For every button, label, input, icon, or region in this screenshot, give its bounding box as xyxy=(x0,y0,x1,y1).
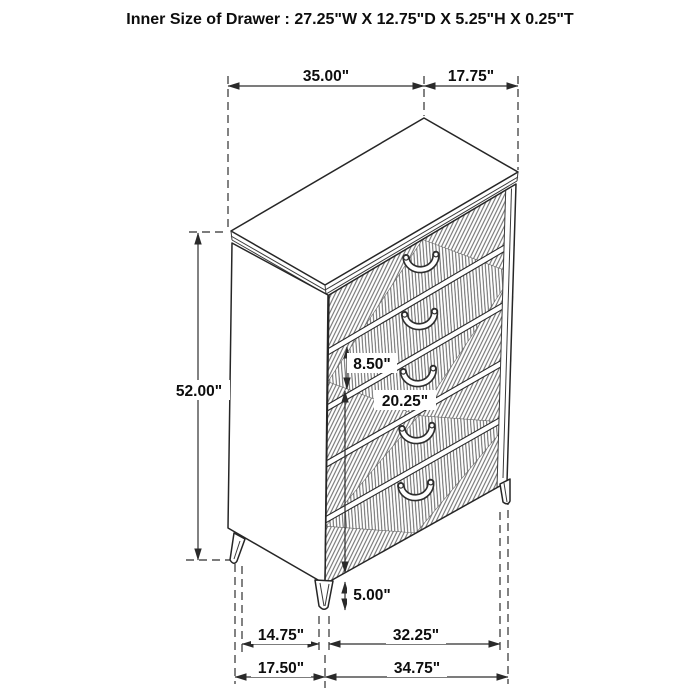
dim-base-inner-depth: 14.75" xyxy=(251,625,311,644)
chest-side-panel xyxy=(228,243,328,584)
dimension-diagram-svg: Inner Size of Drawer : 27.25"W X 12.75"D… xyxy=(0,0,700,700)
dim-label-base-outer-depth: 17.50" xyxy=(258,660,304,677)
product-dimension-diagram: Inner Size of Drawer : 27.25"W X 12.75"D… xyxy=(0,0,700,700)
dim-label-base-inner-depth: 14.75" xyxy=(258,627,304,644)
dim-label-base-inner-width: 32.25" xyxy=(393,627,439,644)
dim-lower-section-height: 20.25" xyxy=(374,390,436,410)
dim-base-inner-width: 32.25" xyxy=(386,625,446,644)
dim-label-top-width: 35.00" xyxy=(303,68,349,85)
diagram-title: Inner Size of Drawer : 27.25"W X 12.75"D… xyxy=(126,11,574,28)
dim-leg-height: 5.00" xyxy=(347,585,397,604)
dim-label-base-outer-width: 34.75" xyxy=(394,660,440,677)
dim-label-drawer-front-height: 8.50" xyxy=(353,356,391,373)
dim-base-outer-depth: 17.50" xyxy=(251,658,311,677)
dim-label-overall-height: 52.00" xyxy=(176,383,222,400)
dim-label-leg-height: 5.00" xyxy=(353,587,391,604)
dim-top-depth: 17.75" xyxy=(441,66,501,85)
dim-drawer-front-height: 8.50" xyxy=(347,353,397,373)
dim-top-width: 35.00" xyxy=(296,66,356,85)
dim-base-outer-width: 34.75" xyxy=(387,658,447,677)
dim-label-top-depth: 17.75" xyxy=(448,68,494,85)
dim-label-lower-section-height: 20.25" xyxy=(382,393,428,410)
dim-overall-height: 52.00" xyxy=(168,380,230,400)
